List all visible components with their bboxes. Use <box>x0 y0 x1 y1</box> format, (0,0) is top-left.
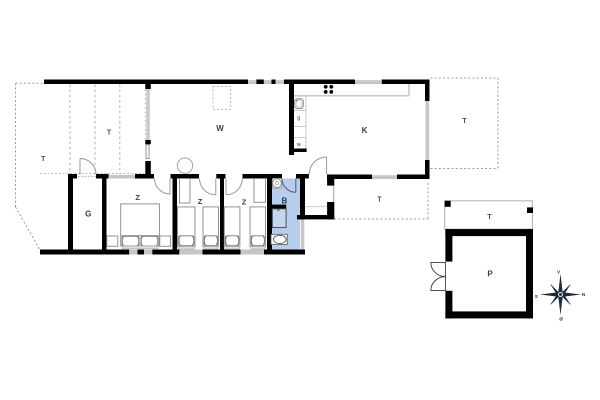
svg-text:K: K <box>362 126 368 135</box>
svg-text:Z: Z <box>135 193 140 202</box>
svg-text:T: T <box>487 214 492 221</box>
svg-text:g: g <box>297 115 300 121</box>
svg-text:W: W <box>216 124 224 133</box>
svg-text:T: T <box>462 118 467 125</box>
svg-text:T: T <box>107 130 112 137</box>
svg-text:w: w <box>296 142 301 148</box>
svg-text:T: T <box>377 197 382 204</box>
svg-text:B: B <box>282 196 288 205</box>
svg-text:Z: Z <box>198 197 203 206</box>
svg-text:T: T <box>41 156 46 163</box>
svg-text:Ø: Ø <box>559 316 563 321</box>
svg-text:sb: sb <box>277 208 281 212</box>
svg-text:P: P <box>487 270 493 279</box>
svg-text:S: S <box>535 294 538 299</box>
svg-text:G: G <box>85 210 91 219</box>
svg-text:Z: Z <box>242 197 247 206</box>
